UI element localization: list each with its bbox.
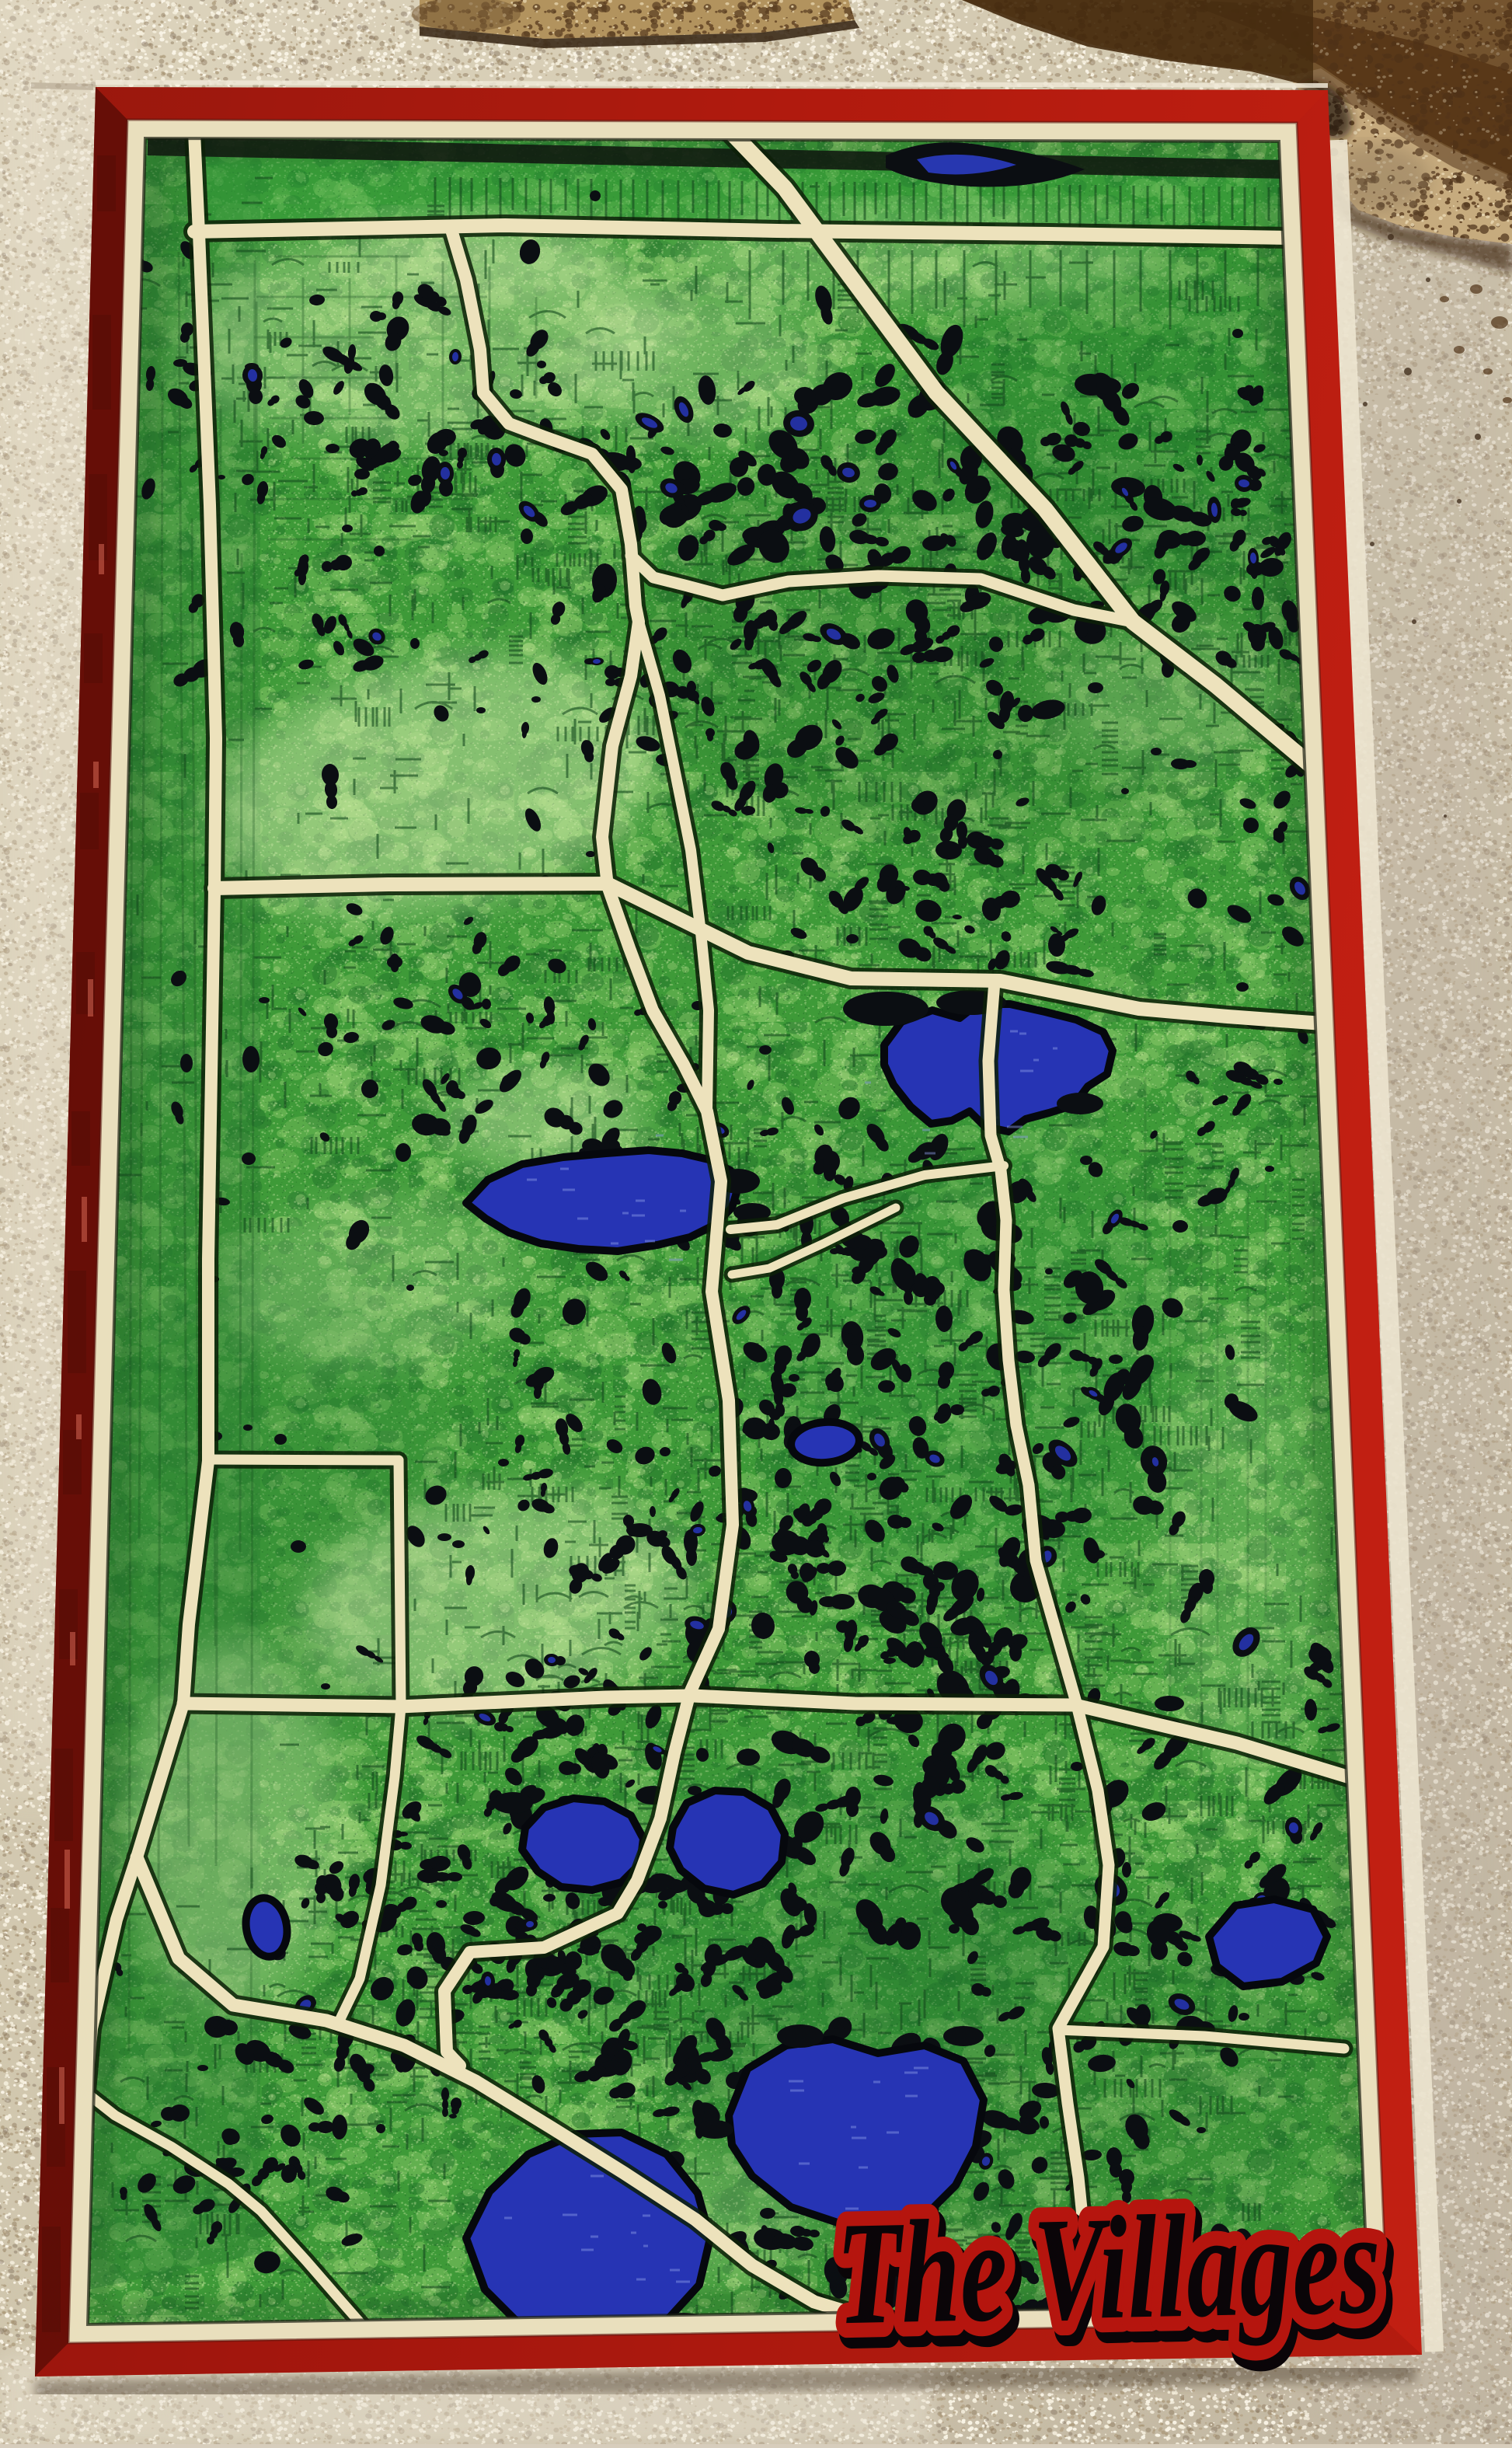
svg-text:The Villages: The Villages: [835, 2181, 1382, 2356]
